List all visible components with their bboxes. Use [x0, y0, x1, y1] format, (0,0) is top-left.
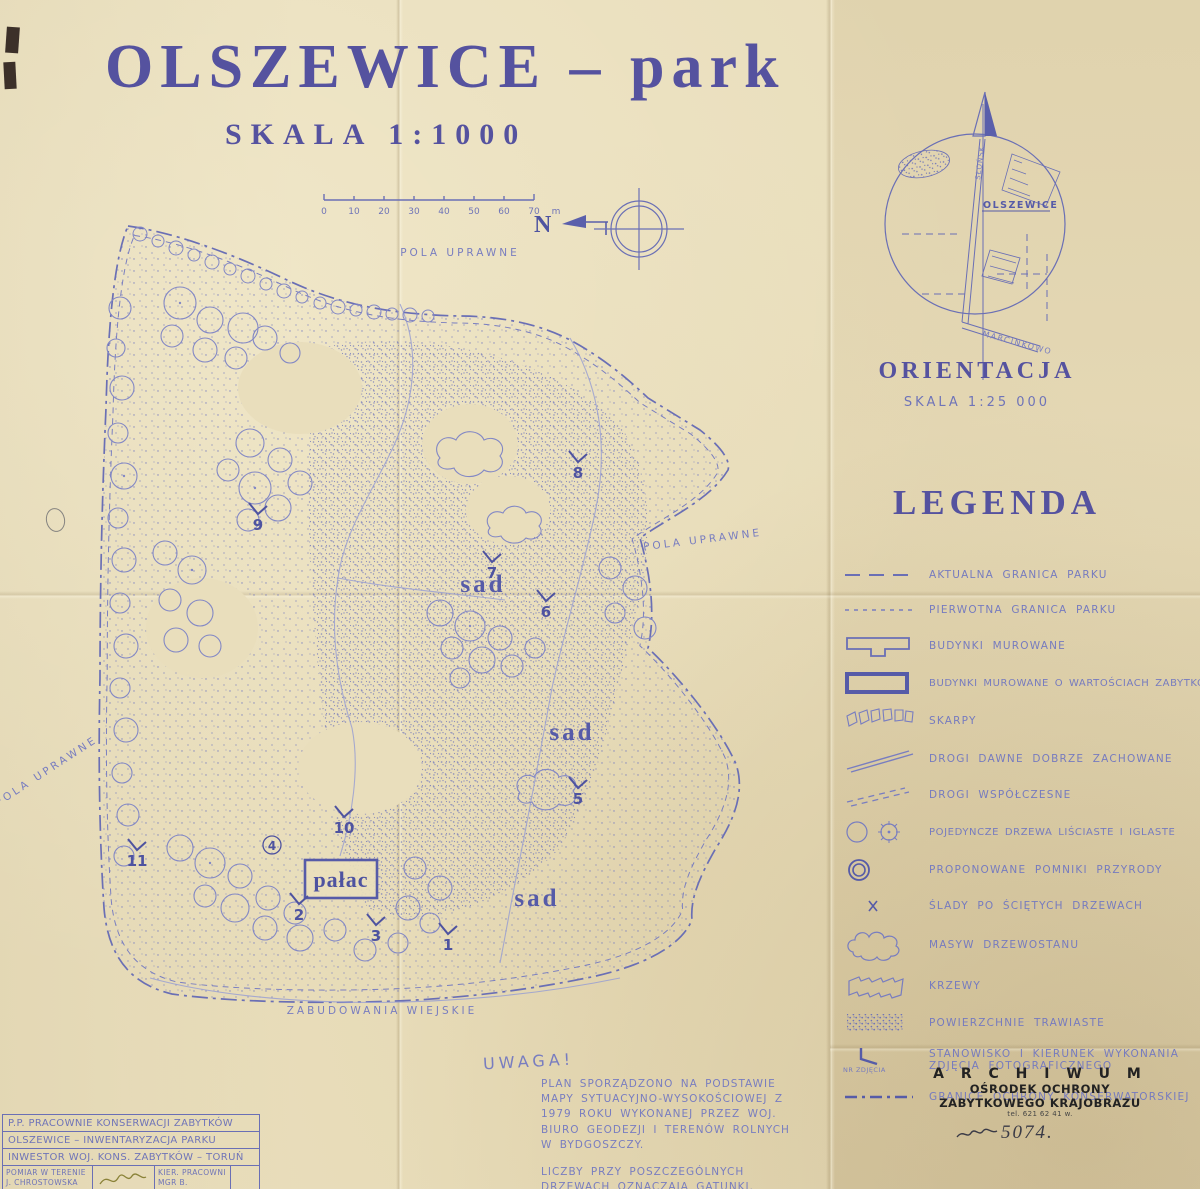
svg-text:8: 8 [573, 464, 583, 482]
legend-item: DROGI DAWNE DOBRZE ZACHOWANE [843, 745, 1195, 773]
orientation-heading: ORIENTACJA [842, 358, 1112, 385]
masonry-building-icon [843, 632, 915, 660]
title-block-row: P.P. PRACOWNIE KONSERWACJI ZABYTKÓW [3, 1115, 259, 1132]
legend-item: POJEDYNCZE DRZEWA LIŚCIASTE I IGLASTE [843, 817, 1195, 847]
legend-item: BUDYNKI MUROWANE [843, 632, 1195, 660]
svg-text:3: 3 [371, 927, 381, 945]
scarp-hatch-icon [843, 706, 915, 736]
svg-text:4: 4 [268, 839, 276, 853]
legend-item: AKTUALNA GRANICA PARKU [843, 562, 1195, 588]
shrubs-icon [843, 971, 915, 1001]
legend-item: PIERWOTNA GRANICA PARKU [843, 597, 1195, 623]
notes-heading: UWAGA! [483, 1050, 575, 1074]
legend-item: ŚLADY PO ŚCIĘTYCH DRZEWACH [843, 893, 1195, 919]
svg-text:2: 2 [294, 906, 304, 924]
signature-cell [93, 1166, 155, 1189]
orientation-road-label-top: SŁOŃSK [973, 145, 986, 180]
orchard-label-3: sad [514, 885, 559, 912]
orchard-label-1: sad [460, 571, 505, 598]
scanned-park-plan-sheet: OLSZEWICE – park SKALA 1:1000 0 10 20 30… [0, 0, 1200, 1189]
legend-item: DROGI WSPÓŁCZESNE [843, 782, 1195, 808]
notes-paragraph-2: LICZBY PRZY POSZCZEGÓLNYCH DRZEWACH OZNA… [541, 1165, 803, 1189]
orientation-road-label-bottom: MARCINKOWO [981, 329, 1053, 356]
handwriting-squiggle [955, 1123, 1001, 1143]
svg-text:1: 1 [443, 936, 453, 954]
vertical-fold-crease [826, 0, 835, 1189]
palace-building: pałac [305, 860, 377, 898]
svg-text:11: 11 [127, 852, 148, 870]
stamp-line-3: ZABYTKOWEGO KRAJOBRAZU [900, 1096, 1180, 1110]
stamp-line-1: A R C H I W U M [900, 1066, 1180, 1082]
tree-mass-cloud-icon [843, 928, 915, 962]
nature-monument-icon [843, 856, 915, 884]
dotted-line-icon [843, 603, 915, 617]
workshop-head-cell: KIER. PRACOWNI MGR B. TOBOLEWICZ [155, 1166, 231, 1189]
legend-item: KRZEWY [843, 971, 1195, 1001]
palace-label: pałac [313, 867, 368, 892]
archive-number: 5074. [955, 1122, 1054, 1144]
orientation-scale: SKALA 1:25 000 [842, 395, 1112, 410]
notes-paragraph-1: PLAN SPORZĄDZONO NA PODSTAWIE MAPY SYTUA… [541, 1077, 803, 1153]
village-buildings-label: ZABUDOWANIA WIEJSKIE [287, 1005, 478, 1017]
fields-label-left: POLA UPRAWNE [0, 734, 100, 809]
title-block-table: P.P. PRACOWNIE KONSERWACJI ZABYTKÓW OLSZ… [2, 1114, 260, 1189]
park-plan-map: pałac POLA UPRAWNE POLA UPRAWNE POLA UPR… [0, 208, 790, 1053]
old-road-icon [843, 745, 915, 773]
title-block-cells: POMIAR W TERENIE J. CHROSTOWSKA KIER. PR… [3, 1166, 259, 1189]
photo-number-note: NR ZDJĘCIA [843, 1067, 886, 1075]
svg-text:10: 10 [334, 819, 355, 837]
svg-text:5: 5 [573, 790, 583, 808]
notes-block: UWAGA! PLAN SPORZĄDZONO NA PODSTAWIE MAP… [483, 1052, 803, 1189]
surveyor-cell: POMIAR W TERENIE J. CHROSTOWSKA [3, 1166, 93, 1189]
legend-heading: LEGENDA [832, 483, 1162, 523]
cut-tree-x-icon [843, 897, 915, 915]
legend-item: BUDYNKI MUROWANE O WARTOŚCIACH ZABYTKOWY… [843, 669, 1195, 697]
fields-label-top: POLA UPRAWNE [400, 247, 520, 259]
dashed-line-icon [843, 568, 915, 582]
title-block-row: INWESTOR WOJ. KONS. ZABYTKÓW – TORUŃ [3, 1149, 259, 1166]
svg-text:9: 9 [253, 516, 263, 534]
svg-text:7: 7 [487, 564, 497, 582]
legend-item: PROPONOWANE POMNIKI PRZYRODY [843, 856, 1195, 884]
heritage-building-icon [843, 669, 915, 697]
scan-artifact [3, 62, 16, 90]
stamp-line-2: OŚRODEK OCHRONY [900, 1082, 1180, 1096]
scale-bar-line [324, 194, 534, 200]
stamp-line-4: tel. 621 62 41 w. [900, 1110, 1180, 1118]
legend: AKTUALNA GRANICA PARKU PIERWOTNA GRANICA… [843, 562, 1195, 1119]
svg-text:6: 6 [541, 603, 551, 621]
modern-road-icon [843, 782, 915, 808]
orientation-place-label: OLSZEWICE [983, 200, 1058, 211]
page-scale: SKALA 1:1000 [225, 118, 527, 152]
fields-label-right: POLA UPRAWNE [643, 527, 763, 553]
title-block-row: OLSZEWICE – INWENTARYZACJA PARKU [3, 1132, 259, 1149]
legend-item: SKARPY [843, 706, 1195, 736]
single-trees-icon [843, 817, 915, 847]
orientation-inset-map: OLSZEWICE SŁOŃSK MARCINKOWO [862, 84, 1098, 388]
grass-stipple-icon [843, 1010, 915, 1036]
legend-item: MASYW DRZEWOSTANU [843, 928, 1195, 962]
legend-item: POWIERZCHNIE TRAWIASTE [843, 1010, 1195, 1036]
archive-stamp: A R C H I W U M OŚRODEK OCHRONY ZABYTKOW… [900, 1066, 1180, 1118]
empty-cell [231, 1166, 259, 1189]
page-title: OLSZEWICE – park [105, 32, 786, 103]
orchard-label-2: sad [549, 719, 594, 746]
scan-artifact [5, 27, 20, 54]
signature-squiggle [96, 1168, 150, 1189]
